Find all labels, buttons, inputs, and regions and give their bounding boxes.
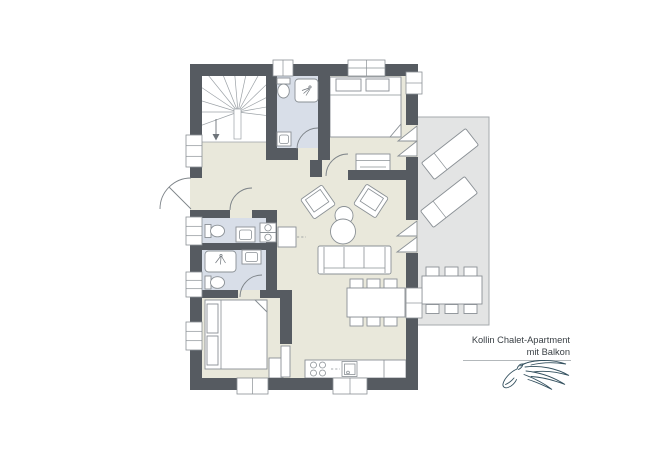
window — [186, 322, 202, 350]
sofa — [318, 246, 391, 274]
chair — [426, 305, 439, 314]
chair — [367, 317, 380, 326]
window — [333, 378, 367, 394]
shower — [295, 79, 318, 102]
window — [348, 60, 385, 76]
toilet — [205, 276, 225, 289]
floorplan-canvas: Kollin Chalet-Apartment mit Balkon — [0, 0, 650, 450]
chair — [426, 267, 439, 276]
chair — [367, 279, 380, 288]
sink — [277, 132, 291, 146]
chair — [384, 279, 397, 288]
window — [186, 217, 202, 245]
chair — [384, 317, 397, 326]
chair — [350, 279, 363, 288]
fridge-unit — [278, 227, 296, 247]
plan-title-line2: mit Balkon — [527, 347, 570, 357]
coffee-table — [331, 219, 356, 244]
chair — [445, 267, 458, 276]
window — [186, 272, 202, 297]
stair-newel — [234, 109, 241, 139]
shower — [205, 251, 236, 272]
balcony-table — [422, 276, 482, 304]
toilet — [205, 225, 225, 238]
balcony — [415, 117, 489, 325]
sink — [242, 250, 261, 264]
plan-title-line1: Kollin Chalet-Apartment — [472, 335, 571, 345]
pillow — [207, 336, 218, 365]
entry-door-opening — [190, 178, 202, 210]
window — [186, 135, 202, 167]
pillow — [336, 79, 361, 91]
dining-set — [347, 279, 405, 326]
dining-table — [347, 288, 405, 317]
balcony-dining-set — [422, 267, 482, 314]
chair — [350, 317, 363, 326]
pillow — [207, 304, 218, 333]
floorplan-page: Kollin Chalet-Apartment mit Balkon — [0, 0, 650, 450]
chair — [445, 305, 458, 314]
pillow — [366, 79, 389, 91]
chair — [464, 267, 477, 276]
window — [406, 288, 422, 318]
chair — [464, 305, 477, 314]
horse-line-art-logo — [503, 360, 569, 389]
kitchen — [305, 360, 406, 378]
window — [406, 72, 422, 94]
sink — [236, 227, 255, 242]
bedroom-bottom-door-leaf — [281, 346, 290, 377]
window — [237, 378, 268, 394]
bench — [356, 154, 390, 171]
window — [273, 60, 293, 76]
toilet — [277, 78, 290, 98]
washer-dryer-stack — [260, 223, 276, 242]
caption: Kollin Chalet-Apartment mit Balkon — [463, 335, 571, 390]
